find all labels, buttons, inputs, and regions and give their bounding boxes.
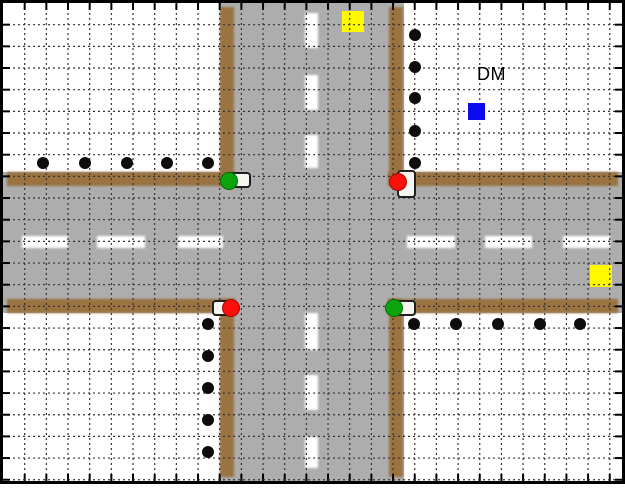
pedestrian-dot[interactable] — [202, 318, 215, 331]
traffic-light-ne[interactable] — [389, 173, 407, 191]
world-canvas[interactable]: DM — [0, 0, 625, 484]
pedestrian-dot[interactable] — [202, 414, 215, 427]
pedestrian-dot[interactable] — [37, 157, 50, 170]
pedestrian-dot[interactable] — [202, 157, 215, 170]
pedestrian-dot[interactable] — [492, 318, 505, 331]
pedestrian-dot[interactable] — [450, 318, 463, 331]
pedestrian-dot[interactable] — [409, 61, 422, 74]
pedestrian-dot[interactable] — [409, 92, 422, 105]
traffic-light-nw[interactable] — [220, 172, 238, 190]
pedestrian-dot[interactable] — [202, 350, 215, 363]
traffic-light-se[interactable] — [385, 299, 403, 317]
pedestrian-dot[interactable] — [574, 318, 587, 331]
dm-label: DM — [477, 64, 506, 85]
traffic-light-sw[interactable] — [222, 299, 240, 317]
pedestrian-dot[interactable] — [409, 125, 422, 138]
pedestrian-dot[interactable] — [161, 157, 174, 170]
pedestrian-dot[interactable] — [79, 157, 92, 170]
pedestrian-dot[interactable] — [202, 446, 215, 459]
pedestrian-dot[interactable] — [121, 157, 134, 170]
pedestrian-dot[interactable] — [409, 29, 422, 42]
agents-layer — [3, 3, 622, 481]
pedestrian-dot[interactable] — [534, 318, 547, 331]
pedestrian-dot[interactable] — [409, 157, 422, 170]
dm-agent[interactable] — [468, 103, 485, 120]
pedestrian-dot[interactable] — [202, 382, 215, 395]
pedestrian-dot[interactable] — [408, 318, 421, 331]
